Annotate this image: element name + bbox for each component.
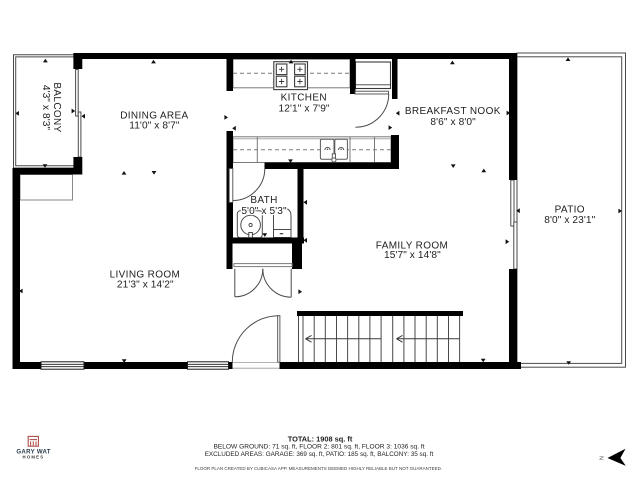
svg-text:TOTAL: 1908 sq. ft: TOTAL: 1908 sq. ft bbox=[288, 434, 353, 443]
svg-text:BATH: BATH bbox=[250, 195, 277, 206]
svg-text:15'7" x 14'8": 15'7" x 14'8" bbox=[384, 250, 441, 261]
svg-text:11'0" x 8'7": 11'0" x 8'7" bbox=[129, 121, 180, 132]
svg-text:FLOOR PLAN CREATED BY CUBICASA: FLOOR PLAN CREATED BY CUBICASA APP. MEAS… bbox=[195, 466, 442, 471]
svg-text:5'0" x 5'3": 5'0" x 5'3" bbox=[241, 206, 287, 217]
svg-text:4'3" x 8'3": 4'3" x 8'3" bbox=[40, 85, 51, 131]
svg-text:EXCLUDED AREAS: GARAGE: 369 sq: EXCLUDED AREAS: GARAGE: 369 sq. ft, PATI… bbox=[205, 451, 434, 458]
svg-text:HOMES: HOMES bbox=[23, 455, 45, 460]
svg-text:PATIO: PATIO bbox=[555, 205, 585, 216]
svg-text:8'0" x 23'1": 8'0" x 23'1" bbox=[544, 215, 595, 226]
svg-text:12'1" x 7'9": 12'1" x 7'9" bbox=[279, 103, 330, 114]
svg-text:8'6" x 8'0": 8'6" x 8'0" bbox=[430, 117, 476, 128]
svg-text:BALCONY: BALCONY bbox=[51, 82, 62, 132]
svg-text:21'3" x 14'2": 21'3" x 14'2" bbox=[117, 280, 174, 291]
svg-text:KITCHEN: KITCHEN bbox=[281, 93, 327, 104]
svg-text:BREAKFAST NOOK: BREAKFAST NOOK bbox=[405, 106, 501, 117]
svg-text:N: N bbox=[598, 456, 604, 460]
svg-text:BELOW GROUND: 71 sq. ft, FLOOR: BELOW GROUND: 71 sq. ft, FLOOR 2: 801 sq… bbox=[213, 444, 424, 451]
